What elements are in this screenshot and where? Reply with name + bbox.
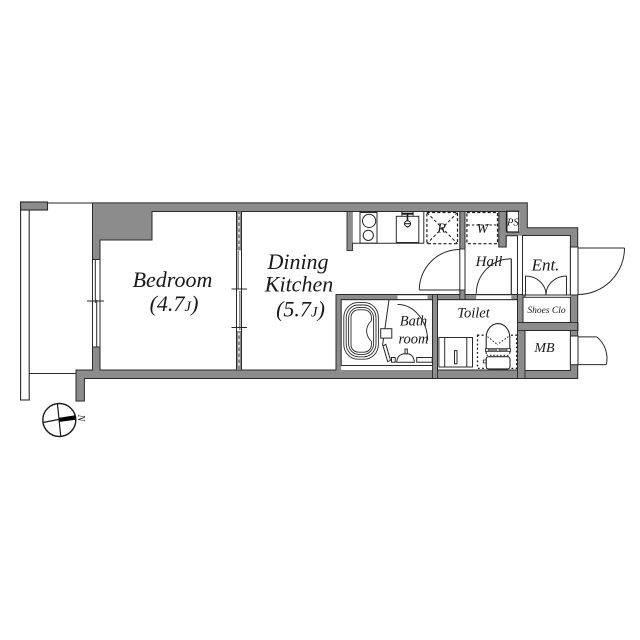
svg-text:N: N <box>75 414 86 423</box>
svg-text:Bath: Bath <box>400 314 427 330</box>
svg-text:PS: PS <box>506 218 519 229</box>
svg-text:Ent.: Ent. <box>531 256 560 275</box>
svg-text:MB: MB <box>533 341 555 356</box>
svg-text:W: W <box>477 222 490 237</box>
svg-text:R: R <box>436 222 446 237</box>
svg-text:(4.7J): (4.7J) <box>150 291 199 316</box>
svg-text:Toilet: Toilet <box>457 306 490 322</box>
svg-text:Bedroom: Bedroom <box>133 267 213 292</box>
svg-text:Kitchen: Kitchen <box>264 272 333 297</box>
svg-text:(5.7J): (5.7J) <box>276 297 325 322</box>
svg-text:Shoes Clo: Shoes Clo <box>527 306 566 316</box>
svg-text:Dining: Dining <box>266 249 328 274</box>
svg-text:room: room <box>398 332 428 348</box>
svg-text:Hall: Hall <box>475 254 503 270</box>
